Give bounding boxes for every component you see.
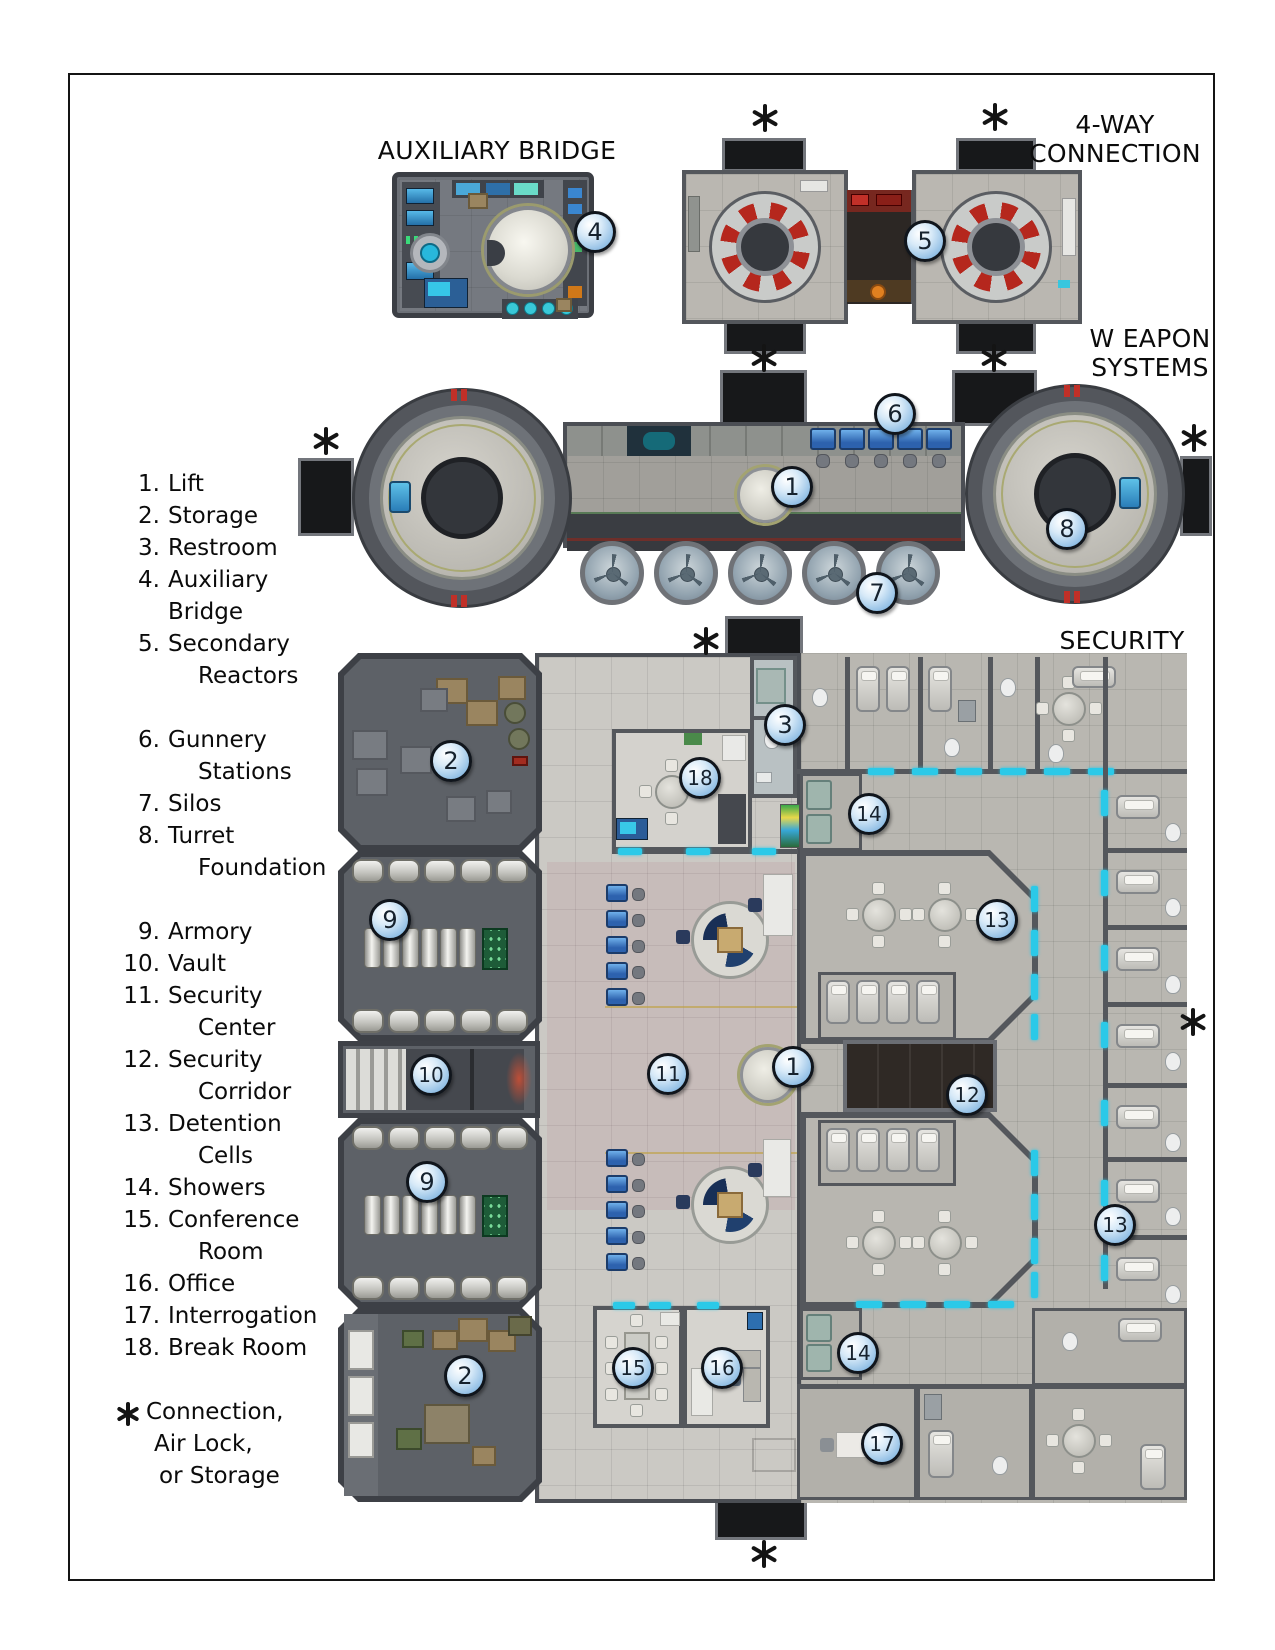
chair-icon bbox=[846, 1236, 859, 1249]
console-icon bbox=[606, 1201, 628, 1219]
console-screen-icon bbox=[643, 432, 675, 450]
connection-asterisk-icon bbox=[980, 344, 1008, 372]
legend-item-number: 11. bbox=[116, 980, 168, 1044]
bed-icon bbox=[1116, 1105, 1160, 1129]
console-icon bbox=[606, 1149, 628, 1167]
legend-item-line: Silos bbox=[168, 788, 221, 820]
chair-icon bbox=[965, 1236, 978, 1249]
toilet-icon bbox=[1165, 823, 1181, 842]
connection-asterisk-icon bbox=[312, 427, 340, 455]
chair-icon bbox=[630, 1404, 643, 1417]
floor-marking bbox=[752, 1438, 796, 1472]
appliance-icon bbox=[684, 733, 702, 745]
vent-icon bbox=[496, 1276, 528, 1300]
marker-detention-cells-13: 13 bbox=[976, 899, 1018, 941]
legend-item-8: 8.TurretFoundation bbox=[116, 820, 342, 884]
toilet-icon bbox=[1062, 1332, 1078, 1351]
color-console-icon bbox=[780, 804, 800, 848]
legend-item-line: Secondary bbox=[168, 628, 298, 660]
cabinet-icon bbox=[660, 1312, 680, 1326]
legend-item-text: GunneryStations bbox=[168, 724, 292, 788]
force-field-icon bbox=[1088, 768, 1114, 775]
toilet-icon bbox=[1165, 975, 1181, 994]
legend-item-16: 16.Office bbox=[116, 1268, 342, 1300]
force-field-icon bbox=[1031, 1238, 1038, 1264]
chair-icon bbox=[899, 1236, 912, 1249]
legend-item-number: 3. bbox=[116, 532, 168, 564]
crate-icon bbox=[402, 1330, 424, 1348]
page: 4561872318149131011112913215161417 AUXIL… bbox=[0, 0, 1275, 1650]
marker-auxiliary-bridge-4: 4 bbox=[574, 211, 616, 253]
legend-item-18: 18.Break Room bbox=[116, 1332, 342, 1364]
vent-icon bbox=[496, 1009, 528, 1033]
chair-icon bbox=[872, 1210, 885, 1223]
indicator-icon bbox=[568, 188, 582, 198]
legend-item-5: 5.SecondaryReactors bbox=[116, 628, 342, 692]
bed-icon bbox=[1072, 666, 1116, 688]
legend-item-1: 1.Lift bbox=[116, 468, 342, 500]
chair-icon bbox=[605, 1388, 618, 1401]
legend-item-number: 18. bbox=[116, 1332, 168, 1364]
legend-item-number: 2. bbox=[116, 500, 168, 532]
force-field-icon bbox=[1101, 1255, 1108, 1281]
barrel-icon bbox=[508, 728, 530, 750]
reactor-core-icon bbox=[736, 218, 794, 276]
bed-icon bbox=[1118, 1318, 1162, 1342]
label-4-way-connection: 4-WAY CONNECTION bbox=[1015, 110, 1215, 168]
chair-icon bbox=[938, 1263, 951, 1276]
legend-item-line: Center bbox=[168, 1012, 275, 1044]
panel-icon bbox=[800, 180, 828, 192]
marker-office-16: 16 bbox=[701, 1347, 743, 1389]
legend-item-line: Reactors bbox=[168, 660, 298, 692]
force-field-icon bbox=[1031, 886, 1038, 912]
force-field-icon bbox=[1000, 768, 1026, 775]
legend-item-line: Office bbox=[168, 1268, 235, 1300]
cabinet-icon bbox=[763, 1139, 791, 1197]
marker-storage-2: 2 bbox=[430, 740, 472, 782]
shower-tile-icon bbox=[756, 668, 786, 704]
legend-item-text: SecondaryReactors bbox=[168, 628, 298, 692]
force-door-icon bbox=[697, 1302, 719, 1309]
legend-item-text: SecurityCenter bbox=[168, 980, 275, 1044]
chair-icon bbox=[655, 1336, 668, 1349]
gunner-seat-icon bbox=[903, 454, 917, 468]
reactor-core-icon bbox=[967, 218, 1025, 276]
seat-icon bbox=[632, 966, 645, 979]
chair-icon bbox=[1062, 729, 1075, 742]
legend-group-2: 6.GunneryStations7.Silos8.TurretFoundati… bbox=[116, 724, 342, 884]
crate-icon bbox=[424, 1404, 470, 1444]
legend-item-line: Conference bbox=[168, 1204, 299, 1236]
table-icon bbox=[1052, 692, 1086, 726]
crate-icon bbox=[508, 1316, 532, 1336]
legend-item-line: Restroom bbox=[168, 532, 278, 564]
ammo-console-icon bbox=[482, 928, 508, 970]
hazard-panel-icon bbox=[876, 194, 902, 206]
label-weapon-line2: SYSTEMS bbox=[1050, 353, 1250, 382]
vault-red-glow bbox=[506, 1052, 532, 1106]
chair-icon bbox=[655, 1388, 668, 1401]
weapon-locker-icon bbox=[364, 1195, 381, 1235]
label-auxiliary-bridge: AUXILIARY BRIDGE bbox=[370, 136, 624, 165]
bed-icon bbox=[856, 1128, 880, 1172]
legend-item-11: 11.SecurityCenter bbox=[116, 980, 342, 1044]
weapon-locker-icon bbox=[459, 928, 476, 968]
vent-icon bbox=[496, 1126, 528, 1150]
vent-icon bbox=[460, 1276, 492, 1300]
legend-item-line: Armory bbox=[168, 916, 252, 948]
force-door-icon bbox=[618, 848, 642, 855]
table-icon bbox=[928, 1226, 962, 1260]
red-tick-icon bbox=[461, 389, 467, 401]
weapon-locker-icon bbox=[459, 1195, 476, 1235]
seat-icon bbox=[632, 992, 645, 1005]
legend-item-text: Silos bbox=[168, 788, 221, 820]
force-field-icon bbox=[1031, 1014, 1038, 1040]
legend-item-number: 4. bbox=[116, 564, 168, 628]
chair-icon bbox=[872, 882, 885, 895]
crate-icon bbox=[356, 768, 388, 796]
vent-icon bbox=[388, 1126, 420, 1150]
bed-icon bbox=[928, 1430, 954, 1478]
legend-item-line: Storage bbox=[168, 500, 258, 532]
crate-icon bbox=[458, 1318, 488, 1342]
chair-icon bbox=[1099, 1434, 1112, 1447]
bed-icon bbox=[886, 1128, 910, 1172]
legend-item-line: Gunnery bbox=[168, 724, 292, 756]
red-tick-icon bbox=[1074, 591, 1080, 603]
red-tick-icon bbox=[451, 595, 457, 607]
toilet-icon bbox=[992, 1456, 1008, 1475]
legend-item-number: 10. bbox=[116, 948, 168, 980]
force-field-icon bbox=[988, 1301, 1014, 1308]
legend-item-line: Lift bbox=[168, 468, 204, 500]
table-icon bbox=[1062, 1424, 1096, 1458]
toilet-icon bbox=[944, 738, 960, 757]
chair-icon bbox=[872, 935, 885, 948]
airlock-stub bbox=[722, 138, 806, 172]
console-screen-icon bbox=[514, 183, 538, 195]
turret-foundation-core bbox=[421, 457, 503, 539]
red-tick-icon bbox=[1064, 591, 1070, 603]
console-icon bbox=[606, 910, 628, 928]
fridge-icon bbox=[722, 735, 746, 761]
label-4-way-line1: 4-WAY bbox=[1015, 110, 1215, 139]
force-field-icon bbox=[1101, 870, 1108, 896]
chair-icon bbox=[748, 1163, 762, 1177]
force-field-icon bbox=[944, 1301, 970, 1308]
chair-icon bbox=[665, 812, 678, 825]
legend-item-14: 14.Showers bbox=[116, 1172, 342, 1204]
legend-item-text: TurretFoundation bbox=[168, 820, 326, 884]
legend-item-line: Turret bbox=[168, 820, 326, 852]
bed-icon bbox=[928, 666, 952, 712]
crate-icon bbox=[396, 1428, 422, 1450]
bed-icon bbox=[1116, 1024, 1160, 1048]
connection-asterisk-icon bbox=[981, 103, 1009, 131]
cell-wall bbox=[988, 657, 993, 771]
vent-icon bbox=[388, 859, 420, 883]
station-core-icon bbox=[717, 1192, 743, 1218]
indicator-icon bbox=[1058, 280, 1070, 288]
control-pod-icon bbox=[389, 481, 411, 513]
force-door-icon bbox=[686, 848, 710, 855]
map-legend: 1.Lift2.Storage3.Restroom4.Auxiliary Bri… bbox=[116, 468, 342, 1492]
station-core-icon bbox=[717, 927, 743, 953]
legend-item-line: Auxiliary Bridge bbox=[168, 564, 342, 628]
desk-icon bbox=[958, 700, 976, 722]
chair-icon bbox=[820, 1438, 834, 1452]
chair-icon bbox=[1046, 1434, 1059, 1447]
console-icon bbox=[606, 988, 628, 1006]
marker-lift-1: 1 bbox=[771, 466, 813, 508]
marker-detention-cells-13: 13 bbox=[1094, 1204, 1136, 1246]
chair-icon bbox=[899, 908, 912, 921]
console-icon bbox=[606, 1253, 628, 1271]
shower-stall-icon bbox=[806, 780, 832, 810]
silo-icon bbox=[728, 541, 792, 605]
locker-icon bbox=[348, 1376, 374, 1416]
chair-icon bbox=[938, 1210, 951, 1223]
chair-icon bbox=[846, 908, 859, 921]
legend-item-line: Security bbox=[168, 1044, 291, 1076]
table-icon bbox=[928, 898, 962, 932]
locker-icon bbox=[348, 1422, 374, 1458]
gunnery-station-icon bbox=[839, 428, 865, 450]
console-icon bbox=[747, 1312, 763, 1330]
port-icon bbox=[524, 302, 537, 315]
legend-footnote-line: Connection, bbox=[146, 1396, 283, 1428]
ammo-console-icon bbox=[482, 1195, 508, 1237]
bed-icon bbox=[886, 666, 910, 712]
marker-armory-9: 9 bbox=[406, 1161, 448, 1203]
legend-item-text: Interrogation bbox=[168, 1300, 317, 1332]
panel-icon bbox=[688, 196, 700, 252]
seat-icon bbox=[632, 888, 645, 901]
table-icon bbox=[862, 1226, 896, 1260]
legend-group-1: 1.Lift2.Storage3.Restroom4.Auxiliary Bri… bbox=[116, 468, 342, 692]
vent-icon bbox=[424, 1126, 456, 1150]
cell-wall bbox=[1108, 1083, 1187, 1088]
legend-item-13: 13.DetentionCells bbox=[116, 1108, 342, 1172]
marker-security-center-11: 11 bbox=[647, 1053, 689, 1095]
connection-asterisk-icon bbox=[692, 627, 720, 655]
vent-icon bbox=[424, 1276, 456, 1300]
seat-icon bbox=[632, 1257, 645, 1270]
connection-asterisk-icon bbox=[750, 344, 778, 372]
legend-group-3: 9.Armory10.Vault11.SecurityCenter12.Secu… bbox=[116, 916, 342, 1364]
vent-icon bbox=[460, 1009, 492, 1033]
crate-icon bbox=[472, 1446, 496, 1466]
asterisk-icon bbox=[116, 1402, 146, 1492]
chair-icon bbox=[872, 1263, 885, 1276]
shelf-icon bbox=[924, 1394, 942, 1420]
vault-door-line bbox=[470, 1049, 474, 1110]
legend-item-text: ConferenceRoom bbox=[168, 1204, 299, 1268]
shower-stall-icon bbox=[806, 814, 832, 844]
cell-wall bbox=[1108, 848, 1187, 853]
chair-icon bbox=[912, 908, 925, 921]
legend-item-line: Security bbox=[168, 980, 275, 1012]
weapon-locker-icon bbox=[402, 1195, 419, 1235]
legend-item-number: 5. bbox=[116, 628, 168, 692]
detention-cell bbox=[1032, 1308, 1187, 1386]
marker-silos-7: 7 bbox=[856, 572, 898, 614]
legend-item-number: 12. bbox=[116, 1044, 168, 1108]
seat-icon bbox=[632, 1231, 645, 1244]
legend-item-9: 9.Armory bbox=[116, 916, 342, 948]
legend-item-number: 13. bbox=[116, 1108, 168, 1172]
chair-icon bbox=[676, 930, 690, 944]
toilet-icon bbox=[1048, 744, 1064, 763]
chair-icon bbox=[938, 882, 951, 895]
bed-icon bbox=[826, 980, 850, 1024]
weapon-locker-icon bbox=[440, 1195, 457, 1235]
weapon-locker-icon bbox=[421, 928, 438, 968]
marker-gunnery-stations-6: 6 bbox=[874, 393, 916, 435]
marker-lift-1: 1 bbox=[772, 1046, 814, 1088]
red-tick-icon bbox=[451, 389, 457, 401]
bed-icon bbox=[1116, 1179, 1160, 1203]
force-field-icon bbox=[868, 768, 894, 775]
crate-icon bbox=[400, 746, 432, 774]
force-field-icon bbox=[1101, 1100, 1108, 1126]
cell-wall bbox=[918, 657, 923, 771]
gunnery-station-icon bbox=[810, 428, 836, 450]
legend-item-text: DetentionCells bbox=[168, 1108, 282, 1172]
legend-item-line: Corridor bbox=[168, 1076, 291, 1108]
bed-icon bbox=[916, 980, 940, 1024]
cell-wall bbox=[1108, 1157, 1187, 1162]
crate-icon bbox=[466, 700, 498, 726]
force-field-icon bbox=[1031, 930, 1038, 956]
console-icon bbox=[606, 962, 628, 980]
force-field-icon bbox=[900, 1301, 926, 1308]
bed-icon bbox=[1116, 870, 1160, 894]
legend-item-number: 1. bbox=[116, 468, 168, 500]
legend-item-2: 2.Storage bbox=[116, 500, 342, 532]
legend-item-number: 6. bbox=[116, 724, 168, 788]
legend-item-line: Cells bbox=[168, 1140, 282, 1172]
force-field-icon bbox=[1101, 1180, 1108, 1206]
legend-item-number: 14. bbox=[116, 1172, 168, 1204]
chair-icon bbox=[665, 759, 678, 772]
legend-item-17: 17.Interrogation bbox=[116, 1300, 342, 1332]
legend-item-4: 4.Auxiliary Bridge bbox=[116, 564, 342, 628]
seat-icon bbox=[632, 1205, 645, 1218]
chair-icon bbox=[630, 1314, 643, 1327]
force-field-icon bbox=[1044, 768, 1070, 775]
shower-stall-icon bbox=[806, 1314, 832, 1342]
seat-icon bbox=[632, 1153, 645, 1166]
toilet-icon bbox=[1165, 1207, 1181, 1226]
force-door-icon bbox=[752, 848, 776, 855]
toilet-icon bbox=[1165, 898, 1181, 917]
control-pod-icon bbox=[1119, 477, 1141, 509]
aux-pod-core-icon bbox=[420, 243, 440, 263]
connection-asterisk-icon bbox=[1179, 1008, 1207, 1036]
chair-icon bbox=[1072, 1461, 1085, 1474]
force-field-icon bbox=[956, 768, 982, 775]
sink-icon bbox=[756, 772, 772, 783]
marker-storage-2: 2 bbox=[444, 1355, 486, 1397]
toilet-icon bbox=[1165, 1285, 1181, 1304]
red-tick-icon bbox=[1074, 385, 1080, 397]
legend-item-number: 16. bbox=[116, 1268, 168, 1300]
seat-icon bbox=[632, 914, 645, 927]
legend-item-line: Stations bbox=[168, 756, 292, 788]
legend-item-text: Showers bbox=[168, 1172, 266, 1204]
crate-icon bbox=[498, 676, 526, 700]
label-weapon-systems: W EAPON SYSTEMS bbox=[1050, 324, 1250, 382]
legend-item-text: Storage bbox=[168, 500, 258, 532]
marker-showers-14: 14 bbox=[837, 1332, 879, 1374]
crate-icon bbox=[468, 193, 488, 209]
gunnery-station-icon bbox=[926, 428, 952, 450]
crate-icon bbox=[352, 730, 388, 760]
legend-item-text: Break Room bbox=[168, 1332, 307, 1364]
console-screen-icon bbox=[486, 183, 510, 195]
seat-icon bbox=[632, 940, 645, 953]
legend-item-3: 3.Restroom bbox=[116, 532, 342, 564]
marker-restroom-3: 3 bbox=[764, 704, 806, 746]
cell-wall bbox=[1108, 925, 1187, 930]
legend-item-number: 8. bbox=[116, 820, 168, 884]
console-icon bbox=[606, 1175, 628, 1193]
weapon-locker-icon bbox=[383, 1195, 400, 1235]
legend-item-text: Vault bbox=[168, 948, 226, 980]
legend-item-line: Break Room bbox=[168, 1332, 307, 1364]
chair-icon bbox=[748, 898, 762, 912]
connection-asterisk-icon bbox=[751, 104, 779, 132]
cell-wall bbox=[1108, 1002, 1187, 1007]
legend-item-text: SecurityCorridor bbox=[168, 1044, 291, 1108]
desk-icon bbox=[743, 1368, 761, 1402]
chair-icon bbox=[938, 935, 951, 948]
bed-icon bbox=[1116, 795, 1160, 819]
force-field-icon bbox=[1031, 1150, 1038, 1176]
floor-guide-line bbox=[605, 1006, 797, 1008]
connection-stub bbox=[720, 370, 807, 426]
shower-stall-icon bbox=[806, 1344, 832, 1372]
legend-footnote-text: Connection,Air Lock,or Storage bbox=[146, 1396, 283, 1492]
console-screen-icon bbox=[428, 282, 450, 296]
marker-interrogation-17: 17 bbox=[861, 1423, 903, 1465]
force-field-icon bbox=[1031, 974, 1038, 1000]
legend-item-15: 15.ConferenceRoom bbox=[116, 1204, 342, 1268]
crate-icon bbox=[556, 298, 572, 312]
crate-icon bbox=[446, 796, 476, 822]
bed-icon bbox=[826, 1128, 850, 1172]
legend-item-number: 9. bbox=[116, 916, 168, 948]
console-icon bbox=[606, 884, 628, 902]
chair-icon bbox=[676, 1195, 690, 1209]
cell-wall bbox=[845, 657, 850, 771]
legend-item-line: Room bbox=[168, 1236, 299, 1268]
legend-item-line: Vault bbox=[168, 948, 226, 980]
cabinet-icon bbox=[763, 874, 793, 936]
marker-armory-9: 9 bbox=[369, 899, 411, 941]
force-field-icon bbox=[856, 1301, 882, 1308]
vent-icon bbox=[352, 1276, 384, 1300]
marker-security-corridor-12: 12 bbox=[946, 1074, 988, 1116]
chair-icon bbox=[605, 1336, 618, 1349]
bed-icon bbox=[856, 980, 880, 1024]
gunner-seat-icon bbox=[932, 454, 946, 468]
legend-item-number: 17. bbox=[116, 1300, 168, 1332]
console-icon bbox=[606, 936, 628, 954]
